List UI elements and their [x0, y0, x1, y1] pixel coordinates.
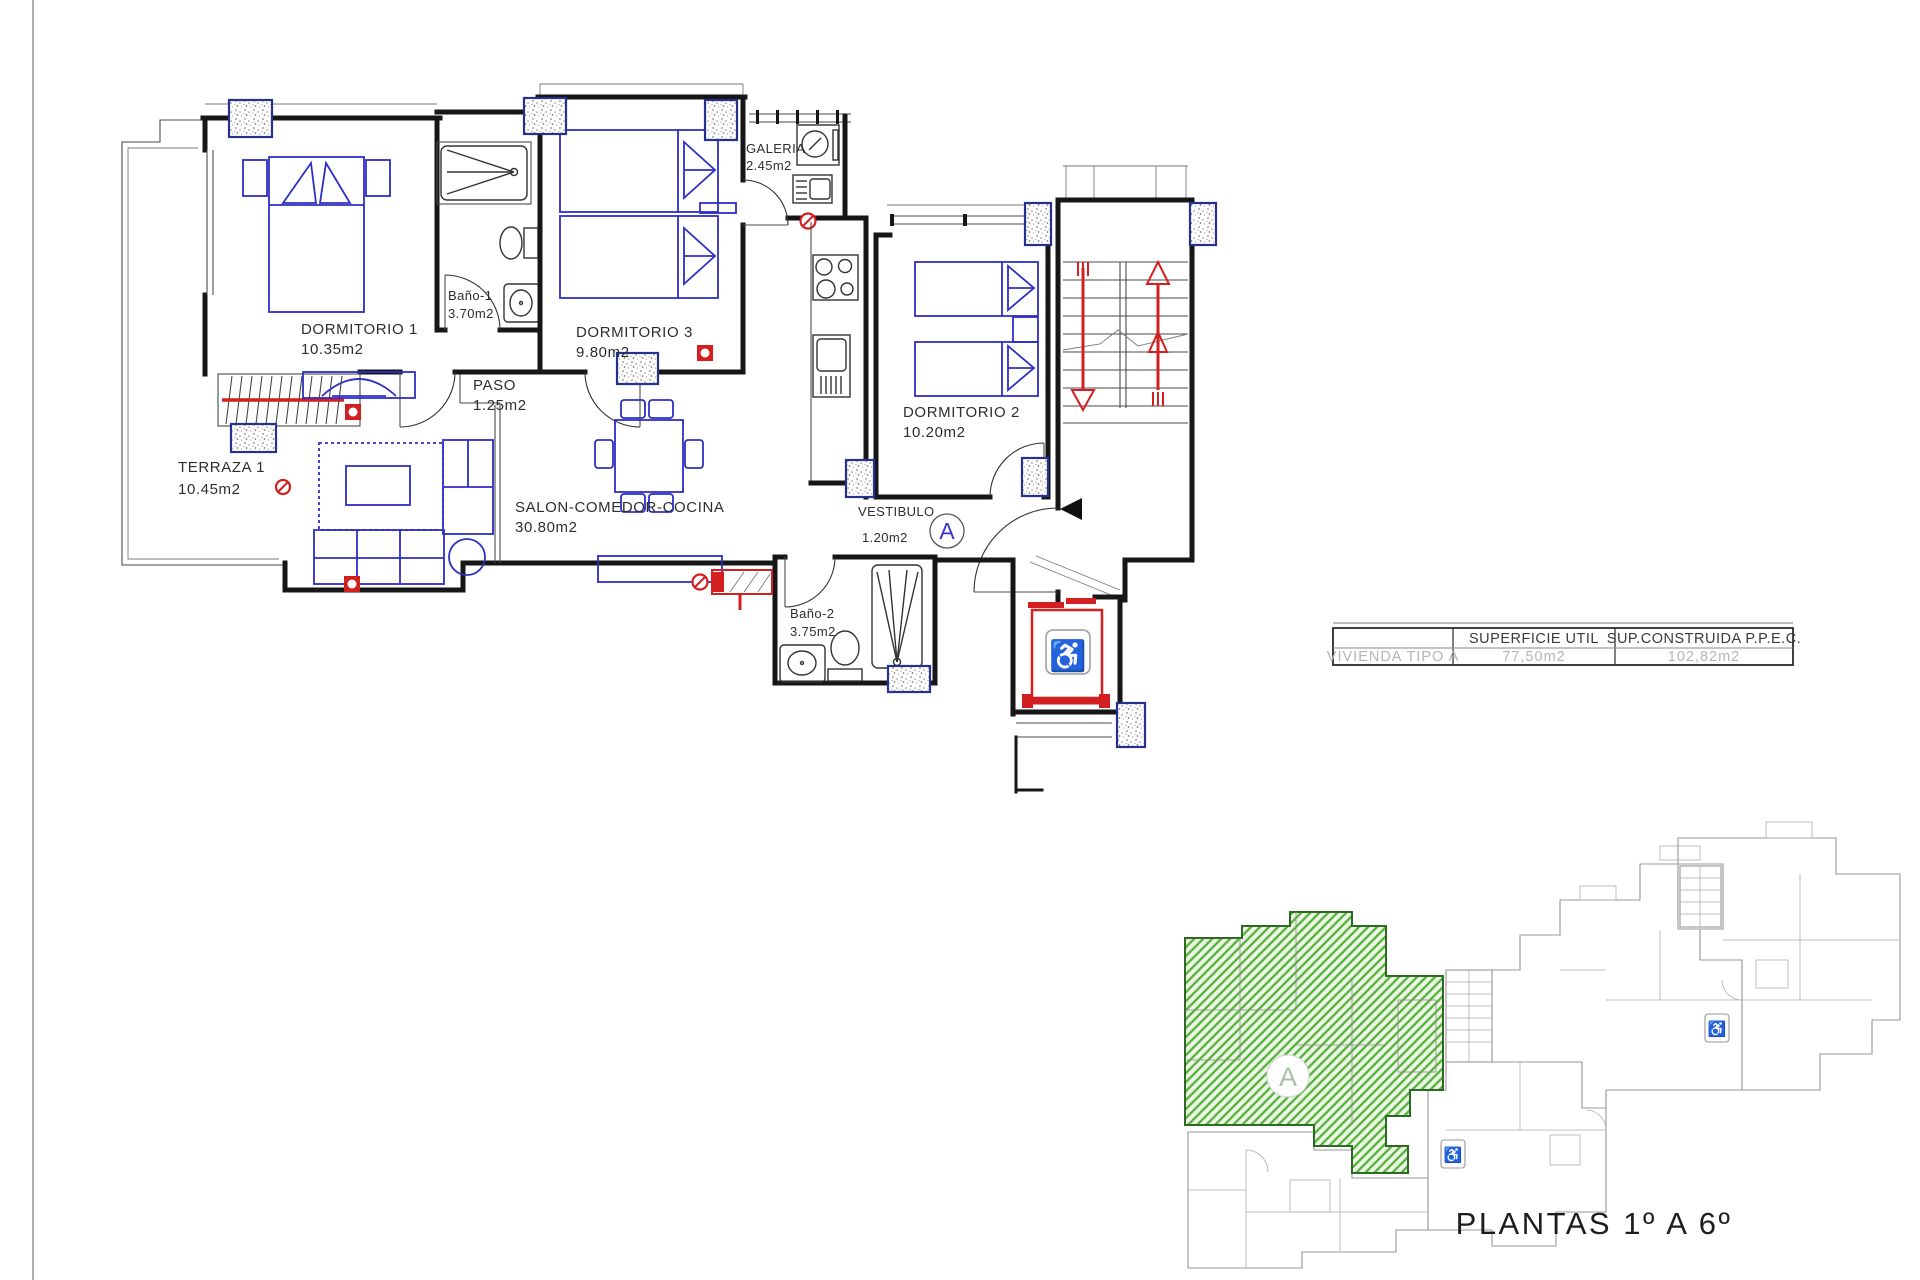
overview-elevator-1: ♿: [1441, 1140, 1465, 1168]
label-paso: PASO: [473, 377, 516, 394]
unit-marker-circle: A: [930, 514, 964, 548]
overview-stair-core-2: [1680, 866, 1721, 927]
overview-unit-letter: A: [1279, 1062, 1297, 1092]
wheelchair-icon: ♿: [1708, 1020, 1727, 1038]
dormitorio-2: [876, 214, 1048, 497]
terraza-boundary: [122, 120, 775, 590]
apartment-plan: A: [122, 84, 1216, 792]
toilet-1: [500, 227, 522, 259]
label-dormitorio-1: DORMITORIO 1: [301, 321, 418, 338]
dormitorio-1-bed: [243, 157, 390, 312]
vestibulo: A: [930, 514, 1013, 560]
floorplan-drawing: A: [0, 0, 1920, 1280]
overview-elevator-2: ♿: [1705, 1014, 1729, 1042]
label-galeria-area: 2.45m2: [746, 158, 792, 173]
label-salon-area: 30.80m2: [515, 519, 578, 536]
coffee-table: [346, 466, 410, 505]
label-dormitorio-2-area: 10.20m2: [903, 424, 966, 441]
label-dormitorio-3: DORMITORIO 3: [576, 324, 693, 341]
area-table: SUPERFICIE UTIL SUP.CONSTRUIDA P.P.E.C. …: [1327, 623, 1801, 665]
dormitorio-2-beds: [915, 262, 1038, 396]
kitchen: [811, 218, 866, 497]
staircase: [974, 200, 1192, 600]
label-paso-area: 1.25m2: [473, 397, 527, 414]
louver-window: [218, 374, 361, 426]
overview-caption: PLANTAS 1º A 6º: [1456, 1206, 1733, 1241]
table-value-superficie: 77,50m2: [1502, 649, 1565, 665]
label-terraza-area: 10.45m2: [178, 481, 241, 498]
label-salon: SALON-COMEDOR-COCINA: [515, 499, 725, 516]
table-header-construida: SUP.CONSTRUIDA P.P.E.C.: [1607, 631, 1801, 647]
radiator: [693, 570, 773, 610]
unit-a-highlight: A: [1185, 912, 1443, 1173]
label-dormitorio-3-area: 9.80m2: [576, 344, 630, 361]
table-row-label: VIVIENDA TIPO A: [1327, 649, 1459, 665]
wheelchair-icon: ♿: [1444, 1146, 1463, 1164]
table-header-superficie: SUPERFICIE UTIL: [1469, 631, 1599, 647]
unit-marker-letter: A: [939, 518, 955, 544]
label-vestibulo: VESTIBULO: [858, 504, 935, 519]
label-galeria: GALERIA: [746, 141, 805, 156]
table-value-construida: 102,82m2: [1668, 649, 1741, 665]
label-vestibulo-area: 1.20m2: [862, 530, 908, 545]
label-bano-1: Baño-1: [448, 288, 492, 303]
label-dormitorio-1-area: 10.35m2: [301, 341, 364, 358]
dormitorio-3-beds: [560, 130, 736, 298]
vent-marker-icon: [801, 214, 816, 229]
entry-arrow-icon: [1060, 498, 1082, 520]
floorplan-sheet: A: [0, 0, 1920, 1280]
side-table: [449, 539, 485, 575]
wheelchair-icon: ♿: [1049, 638, 1086, 673]
building-overview: ♿ ♿ A PLANTAS 1º A 6º: [1185, 822, 1900, 1268]
label-bano-1-area: 3.70m2: [448, 306, 494, 321]
dining-table: [595, 400, 703, 512]
overview-unit-marker: A: [1267, 1055, 1309, 1097]
elevator: ♿: [1013, 556, 1120, 792]
label-terraza: TERRAZA 1: [178, 459, 265, 476]
label-bano-2-area: 3.75m2: [790, 624, 836, 639]
label-dormitorio-2: DORMITORIO 2: [903, 404, 1020, 421]
label-bano-2: Baño-2: [790, 606, 834, 621]
overview-stair-core-1: [1446, 970, 1492, 1062]
entrance-door: [974, 498, 1082, 592]
